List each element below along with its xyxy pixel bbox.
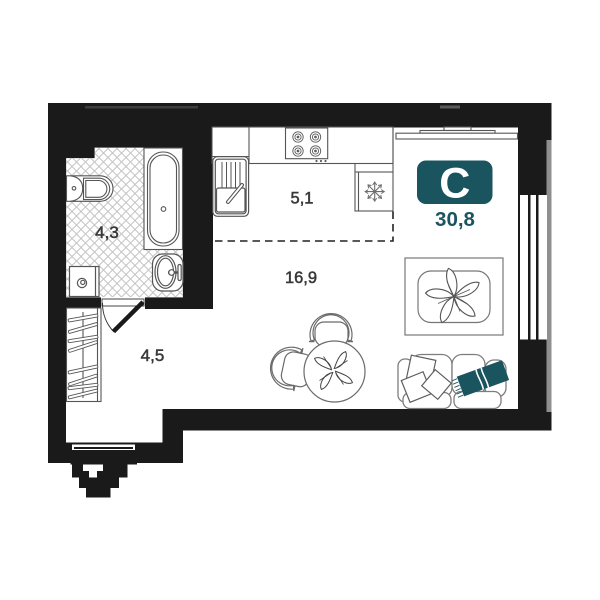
svg-text:C: C (439, 160, 470, 208)
svg-text:30,8: 30,8 (435, 208, 475, 231)
svg-text:16,9: 16,9 (285, 269, 317, 287)
svg-text:4,5: 4,5 (141, 346, 165, 365)
svg-text:4,3: 4,3 (95, 223, 119, 242)
svg-text:5,1: 5,1 (291, 190, 314, 208)
